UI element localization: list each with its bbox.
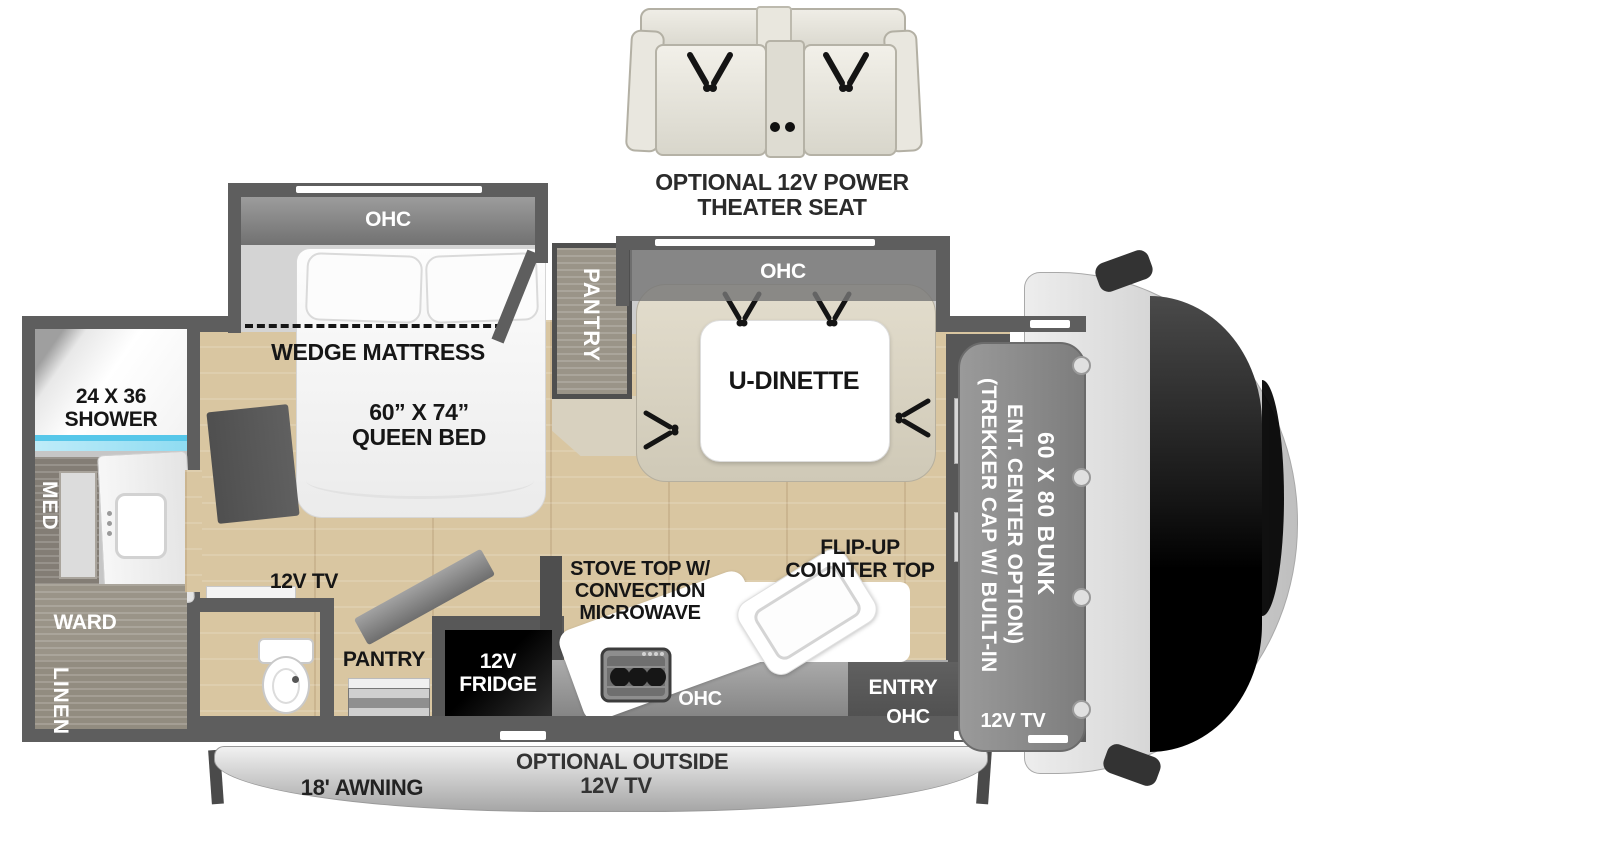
shower-label-text: SHOWER — [45, 408, 177, 431]
wall — [196, 598, 334, 612]
wedge-fold-line — [245, 324, 503, 328]
med-label: MED — [37, 481, 61, 531]
stove-label: STOVE TOP W/ CONVECTION MICROWAVE — [540, 558, 740, 624]
outside-tv-label-line2: 12V TV — [516, 774, 716, 798]
faucet-icon — [107, 511, 112, 516]
wall — [196, 316, 240, 332]
shower-floor — [35, 441, 187, 451]
fridge-label-line2: FRIDGE — [438, 673, 558, 696]
bedroom-tv-icon — [206, 404, 299, 524]
trekker-cap-label-line1: (TREKKER CAP W/ BUILT-IN — [976, 378, 1000, 673]
bunk-latch-icon — [1072, 700, 1091, 719]
flip-up-label-line2: COUNTER TOP — [760, 559, 960, 582]
awning-label: 18' AWNING — [262, 776, 462, 800]
bunk-latch-icon — [1072, 468, 1091, 487]
entry-ohc-label: OHC — [853, 706, 963, 728]
windshield — [1150, 296, 1262, 752]
shower-label: 24 X 36 SHOWER — [45, 385, 177, 431]
dinette-ohc-label: OHC — [683, 260, 883, 283]
wall — [535, 183, 548, 263]
recline-arrows-icon — [892, 392, 932, 444]
ward-label: WARD — [39, 611, 131, 634]
toilet-bowl-inner — [272, 668, 300, 704]
recline-arrows-icon — [642, 404, 682, 456]
queen-bed-name: QUEEN BED — [319, 425, 519, 450]
bed-pillow — [305, 252, 423, 324]
flip-up-counter-label: FLIP-UP COUNTER TOP — [760, 536, 960, 582]
rv-floor-plan: OPTIONAL 12V POWER THEATER SEAT 24 X 36 … — [0, 0, 1600, 844]
faucet-icon — [107, 521, 112, 526]
bath-sink-icon — [115, 493, 167, 559]
slide-marker — [655, 239, 875, 246]
theater-seat — [628, 2, 918, 164]
fridge-label: 12V FRIDGE — [438, 650, 558, 696]
theater-seat-console — [765, 40, 805, 158]
entry-label: ENTRY — [848, 676, 958, 699]
theater-seat-label: OPTIONAL 12V POWER THEATER SEAT — [632, 170, 932, 221]
pantry-top-label: PANTRY — [578, 268, 604, 362]
fridge-label-line1: 12V — [438, 650, 558, 673]
stove-label-line3: MICROWAVE — [540, 602, 740, 624]
queen-bed-size: 60” X 74” — [319, 400, 519, 425]
cupholder-icon — [770, 122, 780, 132]
wedge-mattress-label: WEDGE MATTRESS — [258, 340, 498, 365]
kitchen-ohc-label: OHC — [650, 688, 750, 710]
bed-foot-fold — [306, 462, 534, 499]
toilet-flush-icon — [292, 676, 299, 683]
bedroom-tv-label: 12V TV — [234, 570, 374, 593]
bunk-size-label: 60 X 80 BUNK — [1032, 432, 1059, 596]
outside-tv-label-line1: OPTIONAL OUTSIDE — [516, 750, 716, 774]
door-marker — [500, 731, 546, 740]
linen-label: LINEN — [48, 667, 72, 735]
pantry-bottom-label: PANTRY — [324, 648, 444, 671]
wall — [228, 183, 241, 333]
flip-up-label-line1: FLIP-UP — [760, 536, 960, 559]
slide-marker — [296, 186, 482, 193]
stove-label-line2: CONVECTION — [540, 580, 740, 602]
outside-tv-label: OPTIONAL OUTSIDE 12V TV — [516, 750, 716, 798]
front-tv-label: 12V TV — [953, 710, 1073, 732]
faucet-icon — [107, 531, 112, 536]
bunk-latch-icon — [1072, 588, 1091, 607]
front-tv-icon — [1028, 735, 1068, 743]
shower-label-size: 24 X 36 — [45, 385, 177, 408]
wall — [616, 236, 629, 306]
medicine-cabinet-mirror — [59, 471, 97, 579]
slide-marker — [1030, 320, 1070, 328]
theater-seat-label-line1: OPTIONAL 12V POWER — [632, 170, 932, 195]
bathroom-doorway — [185, 470, 202, 592]
bunk-latch-icon — [1072, 356, 1091, 375]
recline-arrows-icon — [678, 50, 742, 96]
queen-bed-label: 60” X 74” QUEEN BED — [319, 400, 519, 451]
bedroom-ohc-label: OHC — [241, 208, 535, 231]
recline-arrows-icon — [814, 50, 878, 96]
u-dinette-label: U-DINETTE — [694, 368, 894, 396]
stove-label-line1: STOVE TOP W/ — [540, 558, 740, 580]
theater-seat-label-line2: THEATER SEAT — [632, 195, 932, 220]
trekker-cap-label-line2: ENT. CENTER OPTION) — [1002, 404, 1026, 645]
cupholder-icon — [785, 122, 795, 132]
bathroom: 24 X 36 SHOWER MED WARD LINEN — [22, 316, 200, 742]
